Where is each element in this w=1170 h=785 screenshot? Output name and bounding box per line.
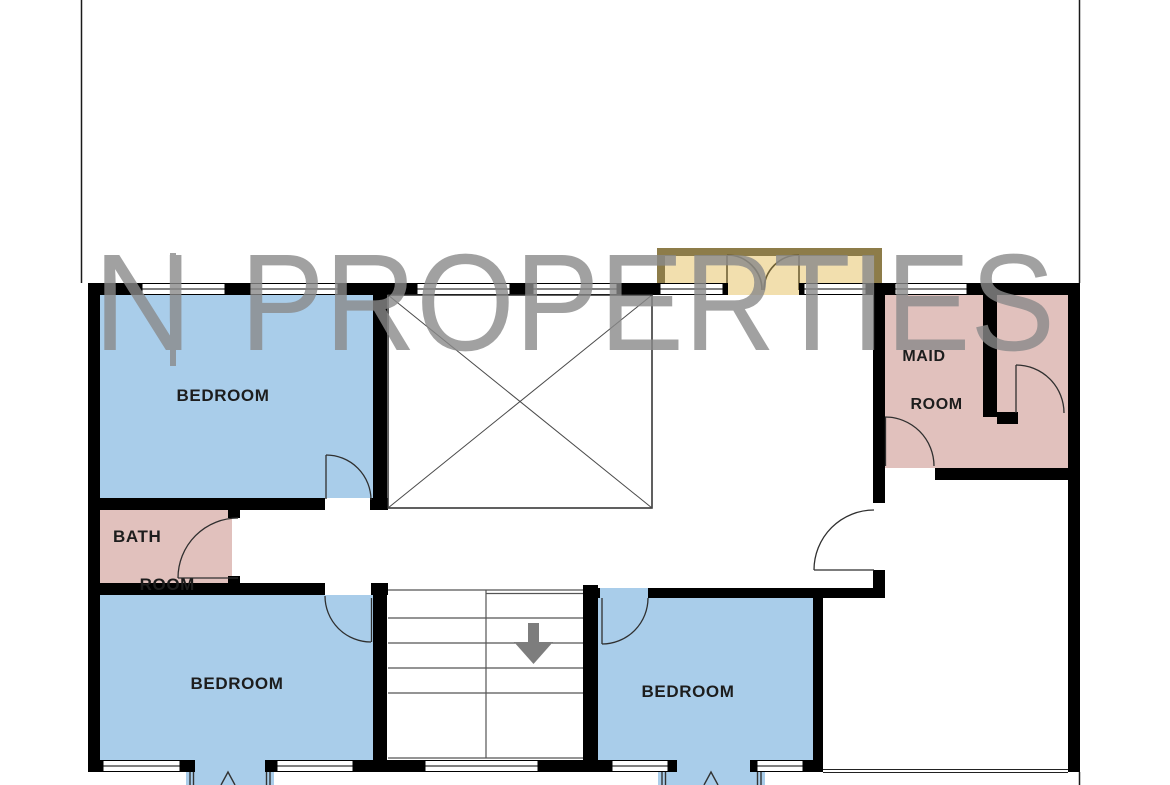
stairs-down-arrow-icon (514, 623, 553, 664)
right-outer-wall (1068, 283, 1080, 772)
bay-window-left-fill (186, 761, 274, 785)
watermark-letter: N (93, 226, 193, 380)
floor-plan: N PROPERTIES BEDROOM BATH ROOM MAID ROOM… (0, 0, 1170, 785)
stairs (388, 590, 583, 758)
label-bedroom-bottom-center: BEDROOM (603, 680, 773, 704)
label-maid-room: MAID ROOM (880, 345, 968, 417)
watermark-separator-bar (170, 253, 176, 366)
label-bathroom: BATH ROOM (113, 525, 195, 597)
label-bedroom-bottom-left: BEDROOM (152, 672, 322, 696)
terrace-parapet (823, 770, 1068, 773)
label-bedroom-top-left: BEDROOM (138, 384, 308, 408)
bedroom-bottom-center-fill (598, 588, 813, 761)
door-hallway (814, 510, 874, 570)
